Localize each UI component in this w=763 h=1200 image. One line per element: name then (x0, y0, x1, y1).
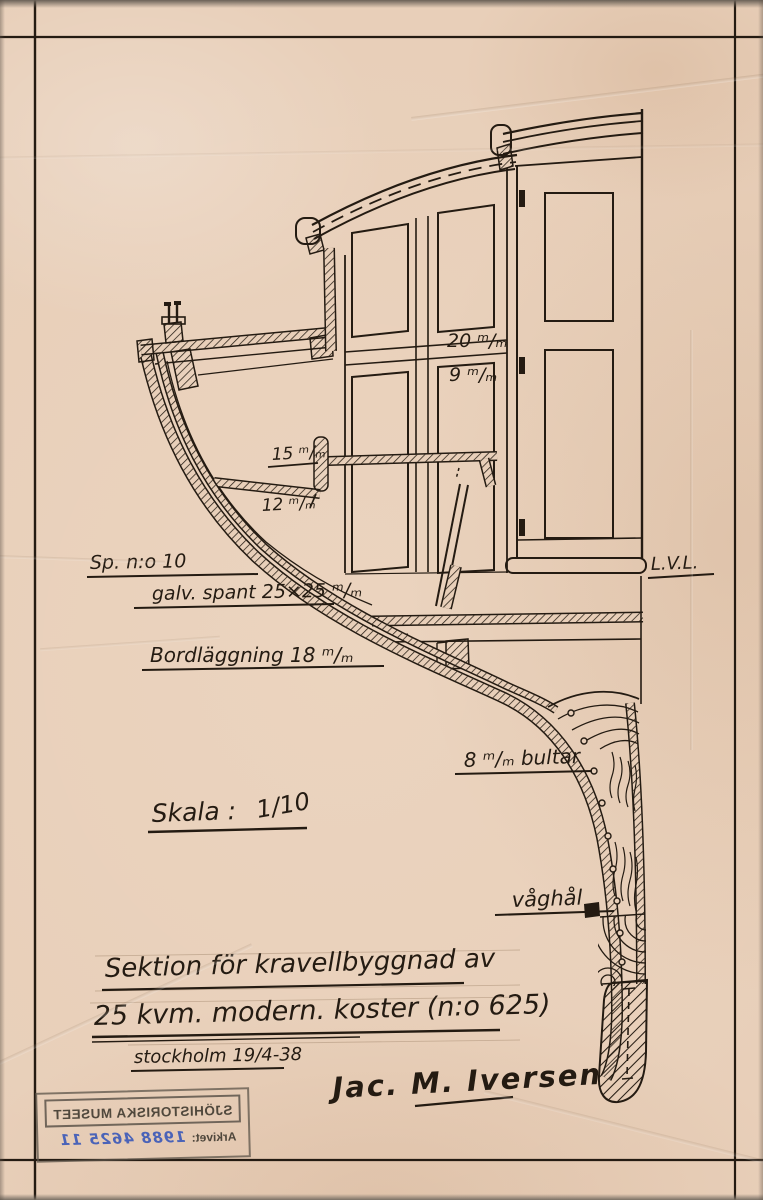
place-date: stockholm 19/4-38 (134, 1044, 303, 1068)
panel-window (352, 224, 408, 337)
door-panel-upper (545, 193, 613, 321)
museum-stamp-archive-label: Arkivet: (191, 1130, 236, 1145)
museum-stamp: SJÖHISTORISKA MUSEET Arkivet: 1988 4625 … (35, 1087, 251, 1163)
title-line1: Sektion för kravellbyggnad av (104, 944, 496, 984)
shelf-15mm (328, 456, 497, 461)
keel-apron-band (630, 703, 641, 984)
hinge (519, 357, 525, 374)
label-bultar: 8 ᵐ/ₘ bultar (463, 744, 582, 772)
label-skala-value: 1/10 (254, 787, 312, 824)
roof-centerline-dashed (313, 162, 516, 232)
label-dim-12: 12 ᵐ/ₘ (261, 493, 316, 516)
label-bordlaggning: Bordläggning 18 ᵐ/ₘ (150, 643, 354, 667)
limber-hole (584, 902, 600, 918)
label-vaghal: våghål (511, 885, 583, 912)
toe-rail (137, 339, 154, 362)
museum-stamp-frame: SJÖHISTORISKA MUSEET (44, 1094, 241, 1127)
panel-window (352, 372, 408, 572)
chainplate-fitting (162, 301, 185, 343)
label-dim-15: 15 ᵐ/ₘ (271, 442, 326, 465)
keel (548, 576, 700, 1102)
label-galv-spant: galv. spant 25×25 ᵐ/ₘ (152, 579, 363, 605)
companionway (491, 109, 646, 573)
hinge (519, 519, 525, 536)
boat-section-drawing: Sp. n:o 10 galv. spant 25×25 ᵐ/ₘ Bordläg… (0, 0, 763, 1200)
cabin-side-strip (329, 248, 331, 351)
label-sp-no: Sp. n:o 10 (90, 550, 187, 574)
sill (506, 558, 646, 573)
title-line2: 25 kvm. modern. koster (n:o 625) (93, 989, 551, 1032)
iron-keel (599, 980, 647, 1102)
label-skala: Skala : (151, 796, 236, 828)
label-lvl: L.V.L. (650, 552, 698, 575)
label-dim-20: 20 ᵐ/ₘ (447, 330, 507, 352)
signature: Jac. M. Iversen (327, 1057, 603, 1105)
label-dim-9: 9 ᵐ/ₘ (449, 364, 497, 386)
title-block: Sektion för kravellbyggnad av 25 kvm. mo… (90, 944, 603, 1106)
drawing-sheet: Sp. n:o 10 galv. spant 25×25 ᵐ/ₘ Bordläg… (0, 0, 763, 1200)
hinge (519, 190, 525, 207)
museum-stamp-name: SJÖHISTORISKA MUSEET (53, 1103, 233, 1123)
keelson-line (385, 639, 641, 642)
frame-head (171, 349, 198, 390)
museum-stamp-archive-number: 1988 4625 11 (59, 1128, 186, 1149)
panel-window (438, 205, 494, 332)
door-panel-lower (545, 350, 613, 538)
